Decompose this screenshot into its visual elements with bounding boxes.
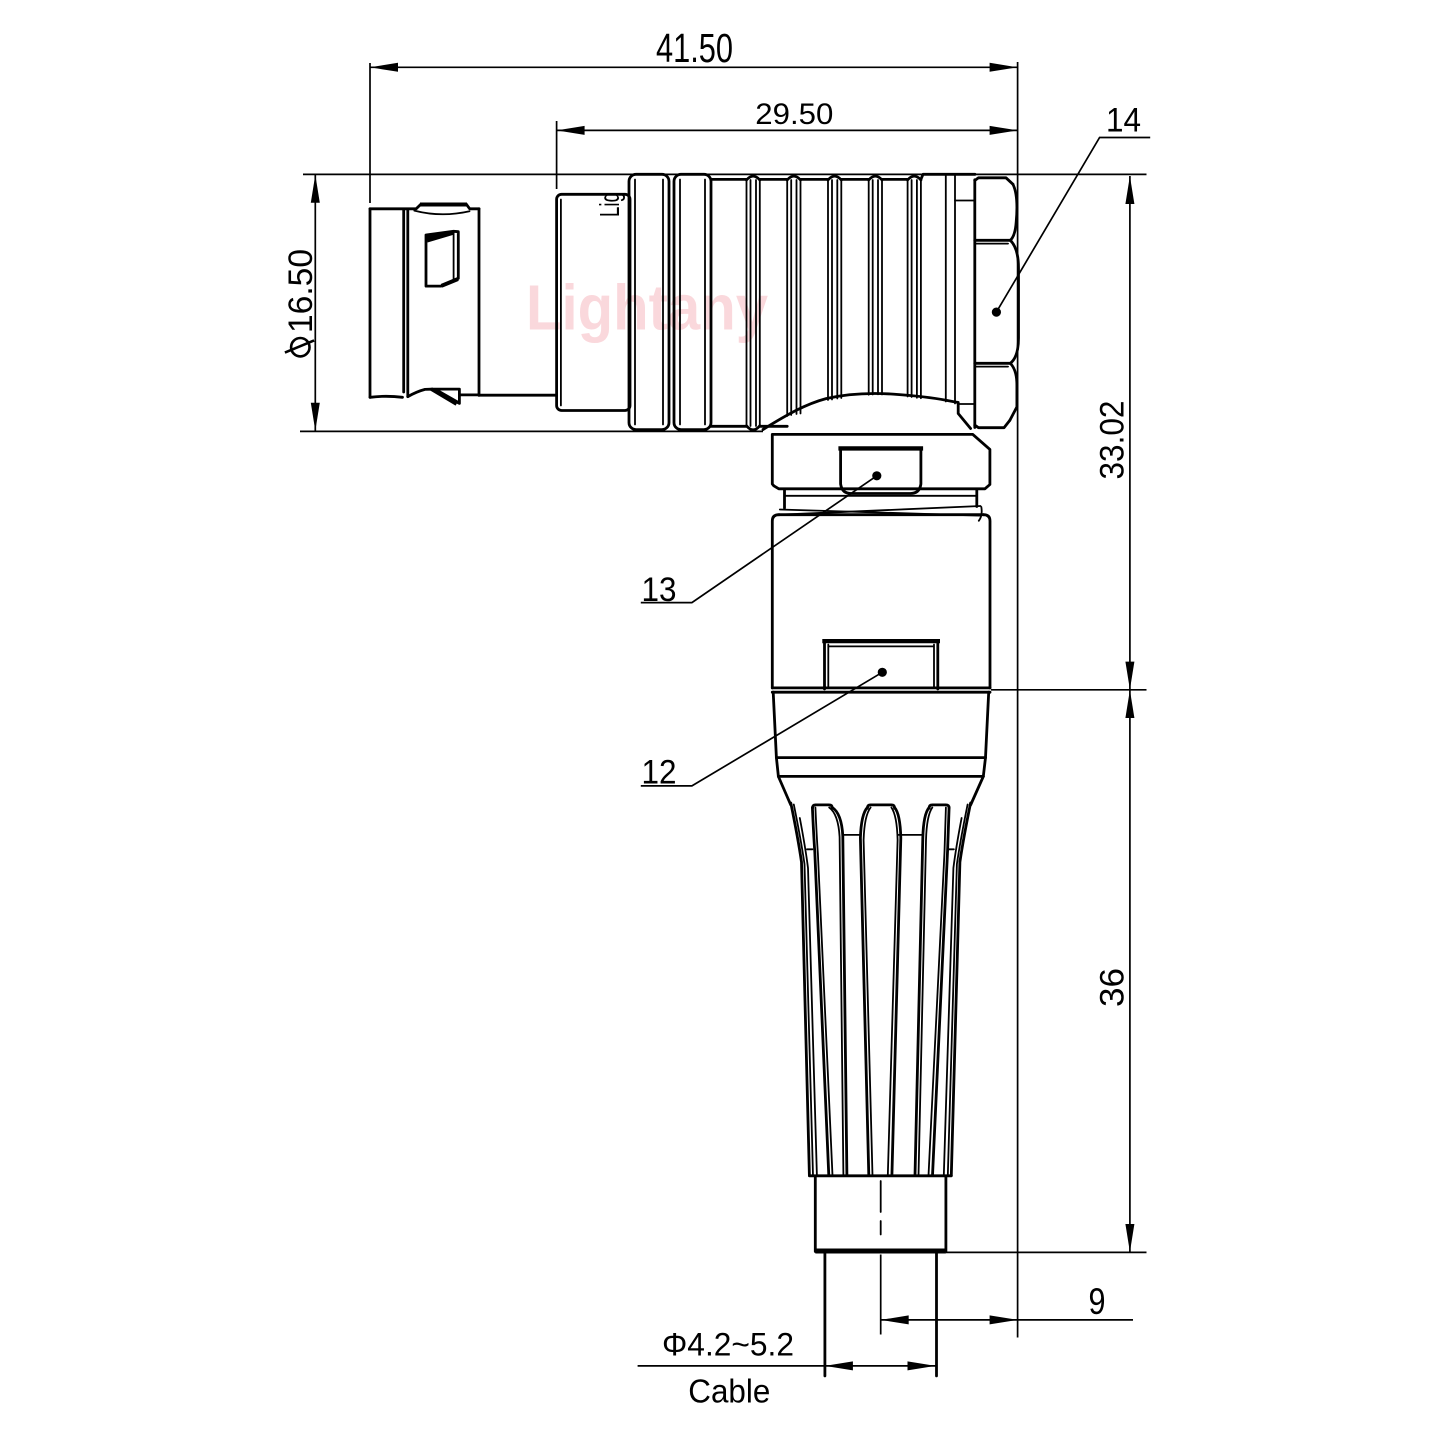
svg-text:41.50: 41.50 bbox=[656, 25, 733, 71]
svg-text:14: 14 bbox=[1106, 102, 1141, 140]
svg-text:Φ4.2~5.2: Φ4.2~5.2 bbox=[662, 1327, 794, 1363]
svg-text:Lightany: Lightany bbox=[526, 272, 768, 344]
svg-text:29.50: 29.50 bbox=[755, 98, 833, 131]
svg-text:33.02: 33.02 bbox=[1094, 401, 1132, 480]
svg-text:9: 9 bbox=[1089, 1281, 1106, 1322]
svg-text:16.50: 16.50 bbox=[282, 249, 320, 333]
svg-text:36: 36 bbox=[1094, 968, 1132, 1007]
svg-text:Cable: Cable bbox=[688, 1374, 770, 1411]
svg-text:Lig: Lig bbox=[594, 192, 625, 217]
